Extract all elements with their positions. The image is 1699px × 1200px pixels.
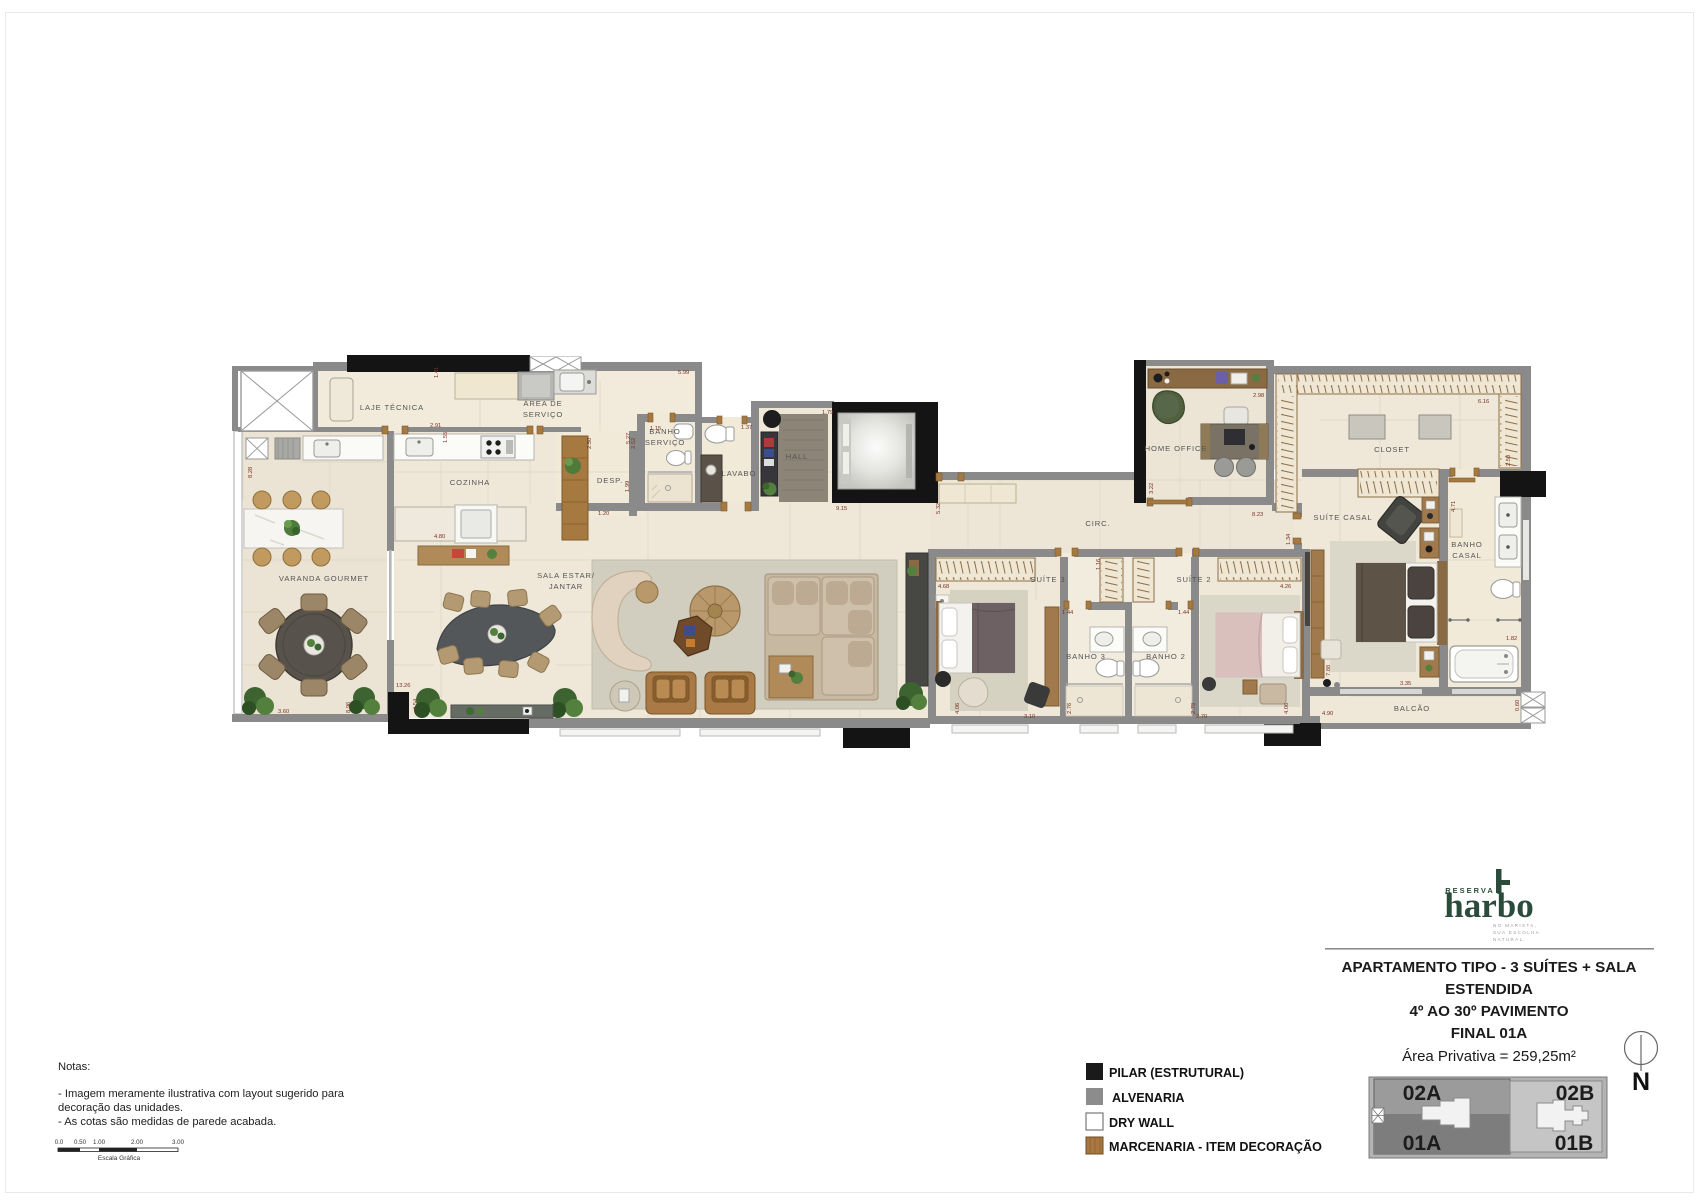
svg-text:HOME OFFICE: HOME OFFICE	[1145, 444, 1208, 453]
svg-text:1.79: 1.79	[822, 410, 833, 416]
svg-text:4.06: 4.06	[955, 703, 961, 714]
svg-text:0.60: 0.60	[1515, 700, 1521, 711]
svg-text:CASAL: CASAL	[1452, 551, 1481, 560]
svg-text:1.16: 1.16	[1096, 559, 1102, 570]
svg-text:1.99: 1.99	[625, 481, 631, 492]
svg-text:BANHO: BANHO	[1451, 540, 1483, 549]
svg-text:COZINHA: COZINHA	[450, 478, 491, 487]
svg-text:8.96: 8.96	[346, 702, 352, 713]
svg-text:Escala Gráfica: Escala Gráfica	[98, 1155, 141, 1162]
svg-text:BALCÃO: BALCÃO	[1394, 704, 1430, 713]
svg-text:4.71: 4.71	[1451, 501, 1457, 512]
svg-text:3.10: 3.10	[1024, 714, 1035, 720]
svg-text:01B: 01B	[1555, 1132, 1594, 1155]
svg-text:ÁREA DE: ÁREA DE	[523, 399, 562, 408]
svg-text:01A: 01A	[1403, 1132, 1442, 1155]
svg-text:4.26: 4.26	[1280, 584, 1291, 590]
svg-text:3.22: 3.22	[1149, 483, 1155, 494]
svg-text:9.15: 9.15	[836, 506, 847, 512]
svg-text:1.55: 1.55	[443, 432, 449, 443]
svg-text:0.50: 0.50	[74, 1139, 87, 1146]
svg-text:4.54: 4.54	[413, 698, 419, 710]
svg-text:2.50: 2.50	[587, 438, 593, 449]
svg-text:2.50: 2.50	[1506, 455, 1512, 466]
svg-text:SUÍTE 3: SUÍTE 3	[1031, 575, 1066, 584]
svg-text:SUÍTE CASAL: SUÍTE CASAL	[1313, 513, 1372, 522]
svg-text:2.00: 2.00	[131, 1139, 144, 1146]
svg-text:1.15: 1.15	[650, 426, 661, 432]
svg-text:JANTAR: JANTAR	[549, 582, 583, 591]
svg-text:5.32: 5.32	[936, 503, 942, 514]
svg-text:5.99: 5.99	[678, 370, 689, 376]
svg-text:FINAL 01A: FINAL 01A	[1451, 1025, 1528, 1042]
svg-text:02B: 02B	[1556, 1082, 1595, 1105]
svg-text:1.20: 1.20	[598, 511, 609, 517]
svg-text:VARANDA GOURMET: VARANDA GOURMET	[279, 574, 369, 583]
svg-text:02A: 02A	[1403, 1082, 1442, 1105]
svg-text:2.76: 2.76	[1067, 703, 1073, 714]
svg-text:4.68: 4.68	[938, 584, 949, 590]
svg-text:CLOSET: CLOSET	[1374, 445, 1410, 454]
svg-text:DRY WALL: DRY WALL	[1109, 1116, 1174, 1130]
svg-text:1.41: 1.41	[434, 367, 440, 378]
svg-text:LAVABO: LAVABO	[722, 469, 757, 478]
svg-text:2.98: 2.98	[1253, 393, 1264, 399]
svg-text:3.00: 3.00	[172, 1139, 185, 1146]
svg-text:2.78: 2.78	[1191, 703, 1197, 714]
svg-text:7.88: 7.88	[1326, 665, 1332, 676]
svg-text:3.60: 3.60	[278, 709, 289, 715]
svg-text:1.34: 1.34	[1286, 533, 1292, 545]
svg-text:4.06: 4.06	[1284, 703, 1290, 714]
svg-text:Notas:: Notas:	[58, 1061, 90, 1073]
svg-text:6.16: 6.16	[1478, 399, 1489, 405]
svg-text:PILAR (ESTRUTURAL): PILAR (ESTRUTURAL)	[1109, 1066, 1244, 1080]
svg-text:SUA ESCOLHA: SUA ESCOLHA	[1493, 930, 1540, 935]
svg-text:8.23: 8.23	[1252, 512, 1263, 518]
svg-text:4º AO 30º PAVIMENTO: 4º AO 30º PAVIMENTO	[1409, 1003, 1568, 1020]
svg-text:2.70: 2.70	[1196, 714, 1207, 720]
svg-text:0.0: 0.0	[55, 1139, 64, 1146]
svg-text:decoração das unidades.: decoração das unidades.	[58, 1102, 183, 1114]
svg-text:4.90: 4.90	[1322, 711, 1333, 717]
svg-text:BANHO 3: BANHO 3	[1066, 652, 1106, 661]
svg-text:NATURAL.: NATURAL.	[1493, 937, 1526, 942]
svg-text:1.82: 1.82	[1506, 636, 1517, 642]
svg-text:APARTAMENTO TIPO - 3 SUÍTES +: APARTAMENTO TIPO - 3 SUÍTES + SALA	[1342, 959, 1637, 976]
svg-text:DESP.: DESP.	[597, 476, 623, 485]
svg-text:1.44: 1.44	[1062, 610, 1074, 616]
svg-text:SERVIÇO: SERVIÇO	[645, 438, 685, 447]
svg-text:1.44: 1.44	[1178, 610, 1190, 616]
svg-text:LAJE TÉCNICA: LAJE TÉCNICA	[360, 403, 424, 412]
svg-text:13.26: 13.26	[396, 683, 411, 689]
svg-text:3.35: 3.35	[1400, 681, 1411, 687]
svg-text:8.28: 8.28	[248, 467, 254, 478]
svg-text:Área Privativa = 259,25m²: Área Privativa = 259,25m²	[1402, 1048, 1576, 1065]
svg-text:ESTENDIDA: ESTENDIDA	[1445, 981, 1533, 998]
svg-text:5.27: 5.27	[626, 433, 632, 444]
svg-text:N: N	[1632, 1068, 1650, 1096]
svg-text:SERVIÇO: SERVIÇO	[523, 410, 563, 419]
svg-text:BANHO 2: BANHO 2	[1146, 652, 1186, 661]
svg-text:SALA ESTAR/: SALA ESTAR/	[537, 571, 595, 580]
svg-text:- As cotas são medidas de pare: - As cotas são medidas de parede acabada…	[58, 1116, 276, 1128]
svg-text:harbo: harbo	[1444, 886, 1533, 925]
svg-text:2.91: 2.91	[430, 423, 441, 429]
svg-text:1.37: 1.37	[741, 425, 752, 431]
svg-text:MARCENARIA - ITEM DECORAÇÃO: MARCENARIA - ITEM DECORAÇÃO	[1109, 1139, 1322, 1154]
svg-text:NO MARISTA,: NO MARISTA,	[1493, 923, 1537, 928]
svg-text:4.80: 4.80	[434, 534, 445, 540]
svg-text:- Imagem meramente ilustrativa: - Imagem meramente ilustrativa com layou…	[58, 1088, 345, 1100]
svg-text:ALVENARIA: ALVENARIA	[1112, 1091, 1185, 1105]
svg-text:SUÍTE 2: SUÍTE 2	[1177, 575, 1212, 584]
svg-text:HALL: HALL	[786, 452, 809, 461]
svg-text:CIRC.: CIRC.	[1085, 519, 1110, 528]
svg-text:1.00: 1.00	[93, 1139, 106, 1146]
